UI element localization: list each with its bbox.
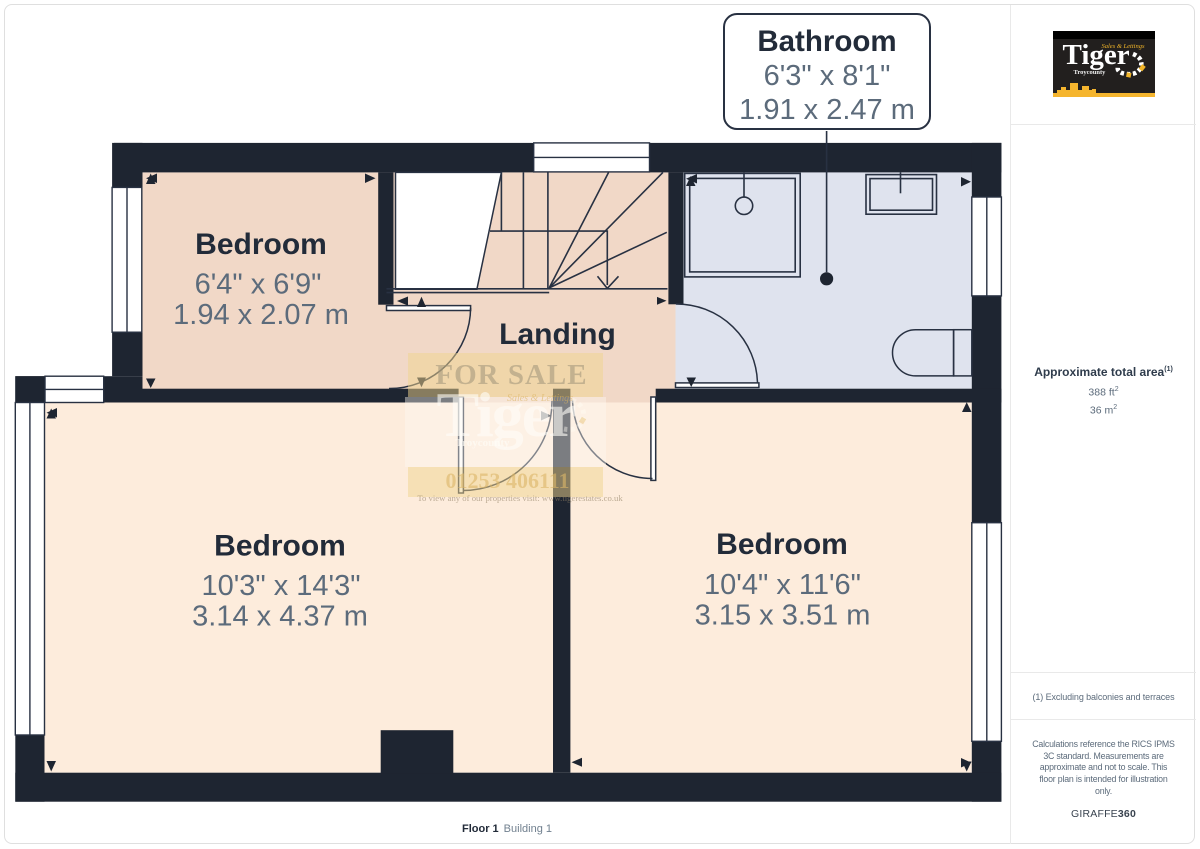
- svg-text:3.14 x 4.37 m: 3.14 x 4.37 m: [192, 601, 368, 633]
- svg-text:Bedroom: Bedroom: [195, 228, 327, 261]
- svg-text:3.15 x 3.51 m: 3.15 x 3.51 m: [695, 600, 871, 632]
- svg-text:6'4" x 6'9": 6'4" x 6'9": [195, 269, 322, 301]
- svg-text:10'4" x 11'6": 10'4" x 11'6": [704, 569, 861, 601]
- svg-text:Bedroom: Bedroom: [716, 528, 848, 561]
- svg-text:Landing: Landing: [499, 318, 616, 351]
- svg-text:1.94 x 2.07 m: 1.94 x 2.07 m: [173, 299, 349, 331]
- svg-text:Bedroom: Bedroom: [214, 530, 346, 563]
- svg-text:10'3" x 14'3": 10'3" x 14'3": [201, 570, 360, 602]
